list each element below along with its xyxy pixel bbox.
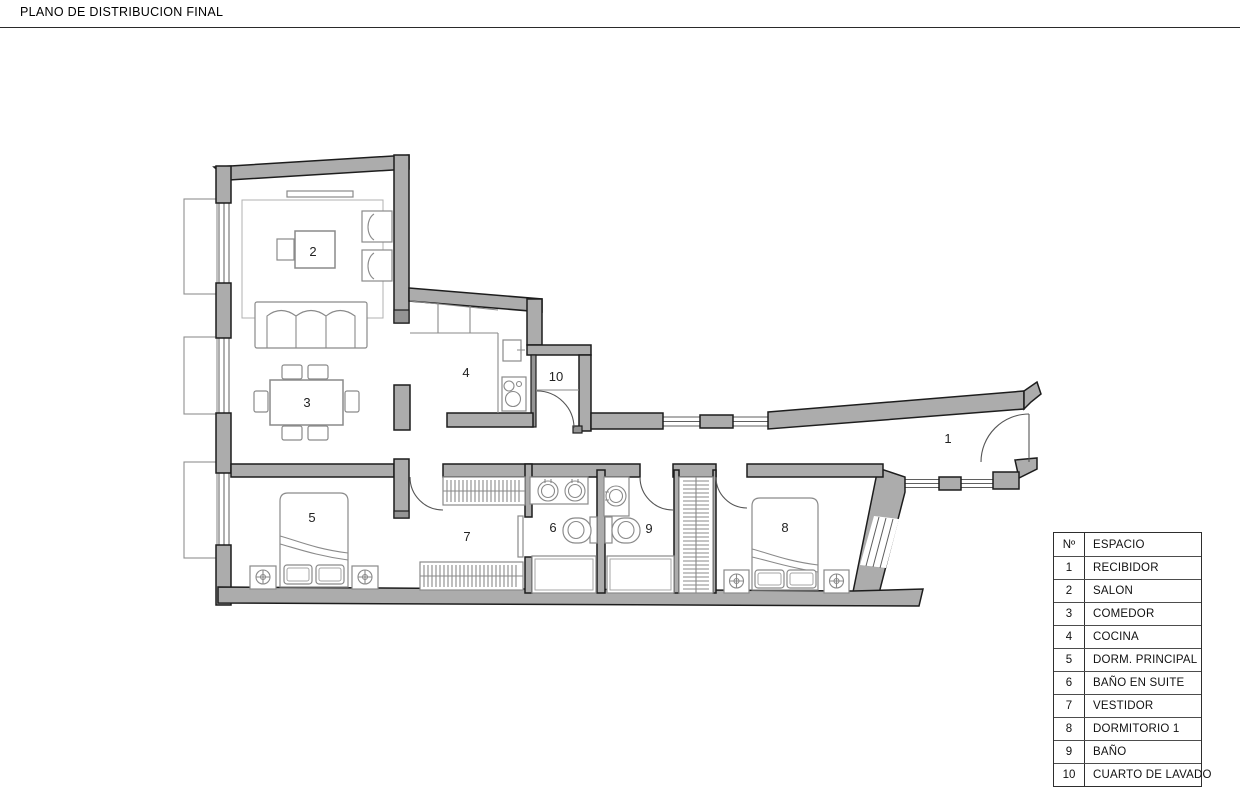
dining-chair [282, 426, 302, 440]
wardrobe [420, 562, 523, 590]
tv-shelf [287, 191, 353, 197]
sink-vanity [604, 477, 629, 516]
room-label-3: 3 [303, 395, 310, 410]
bathroom-fixtures [604, 477, 674, 593]
room-label-9: 9 [645, 521, 652, 536]
toilet [563, 517, 597, 543]
side-table [277, 239, 294, 260]
nightstand-lamp [352, 566, 378, 589]
legend-row: 1 RECIBIDOR [1054, 556, 1201, 579]
legend-row: 3 COMEDOR [1054, 602, 1201, 625]
bath-door-arc [640, 477, 673, 510]
legend-row: 9 BAÑO [1054, 740, 1201, 763]
legend-table: Nº ESPACIO 1 RECIBIDOR 2 SALON 3 COMEDOR… [1053, 532, 1202, 787]
legend-row: 2 SALON [1054, 579, 1201, 602]
double-sink-vanity [530, 477, 588, 504]
armchair [362, 250, 392, 281]
pillow [755, 570, 784, 588]
legend-row: 8 DORMITORIO 1 [1054, 717, 1201, 740]
nightstand-lamp [724, 570, 749, 593]
bedroom1-door-arc [716, 477, 747, 508]
cooktop [502, 377, 526, 411]
kitchen-counter [410, 301, 498, 413]
pillow [316, 565, 344, 584]
legend-header-num: Nº [1054, 533, 1085, 556]
nightstand-lamp [824, 570, 849, 593]
laundry-door-arc [537, 391, 574, 428]
shower [532, 556, 596, 593]
legend-row: 10 CUARTO DE LAVADO [1054, 763, 1201, 786]
kitchen-furniture [410, 301, 526, 413]
dining-chair [254, 391, 268, 412]
room-label-2: 2 [309, 244, 316, 259]
legend-row: 6 BAÑO EN SUITE [1054, 671, 1201, 694]
room-label-4: 4 [462, 365, 469, 380]
dining-chair [345, 391, 359, 412]
room-label-1: 1 [944, 431, 951, 446]
vestidor-door-arc [410, 477, 443, 510]
ensuite-door-leaf [518, 516, 523, 557]
master-bedroom-furniture [250, 493, 378, 589]
legend-header-space: ESPACIO [1085, 533, 1201, 556]
armchair [362, 211, 392, 242]
room-label-7: 7 [463, 529, 470, 544]
dining-chair [308, 365, 328, 379]
living-room-furniture [242, 191, 392, 348]
entry-door [981, 414, 1029, 462]
dining-chair [308, 426, 328, 440]
kitchen-sink [503, 340, 525, 361]
legend-row: 4 COCINA [1054, 625, 1201, 648]
wardrobe [679, 477, 713, 593]
exterior-window-boxes [184, 199, 217, 558]
legend-row: 5 DORM. PRINCIPAL [1054, 648, 1201, 671]
pillow [787, 570, 816, 588]
toilet [605, 517, 640, 543]
room-label-6: 6 [549, 520, 556, 535]
shower [607, 556, 674, 593]
wardrobe [443, 477, 525, 505]
ensuite-bathroom-fixtures [530, 477, 597, 593]
nightstand-lamp [250, 566, 276, 589]
room-label-5: 5 [308, 510, 315, 525]
room-label-8: 8 [781, 520, 788, 535]
legend-row: 7 VESTIDOR [1054, 694, 1201, 717]
legend-header-row: Nº ESPACIO [1054, 533, 1201, 556]
dining-chair [282, 365, 302, 379]
room-label-10: 10 [549, 369, 563, 384]
bedroom1-furniture [724, 498, 849, 593]
plan-sheet: PLANO DE DISTRIBUCION FINAL [0, 0, 1240, 798]
sofa [255, 302, 367, 348]
pillow [284, 565, 312, 584]
